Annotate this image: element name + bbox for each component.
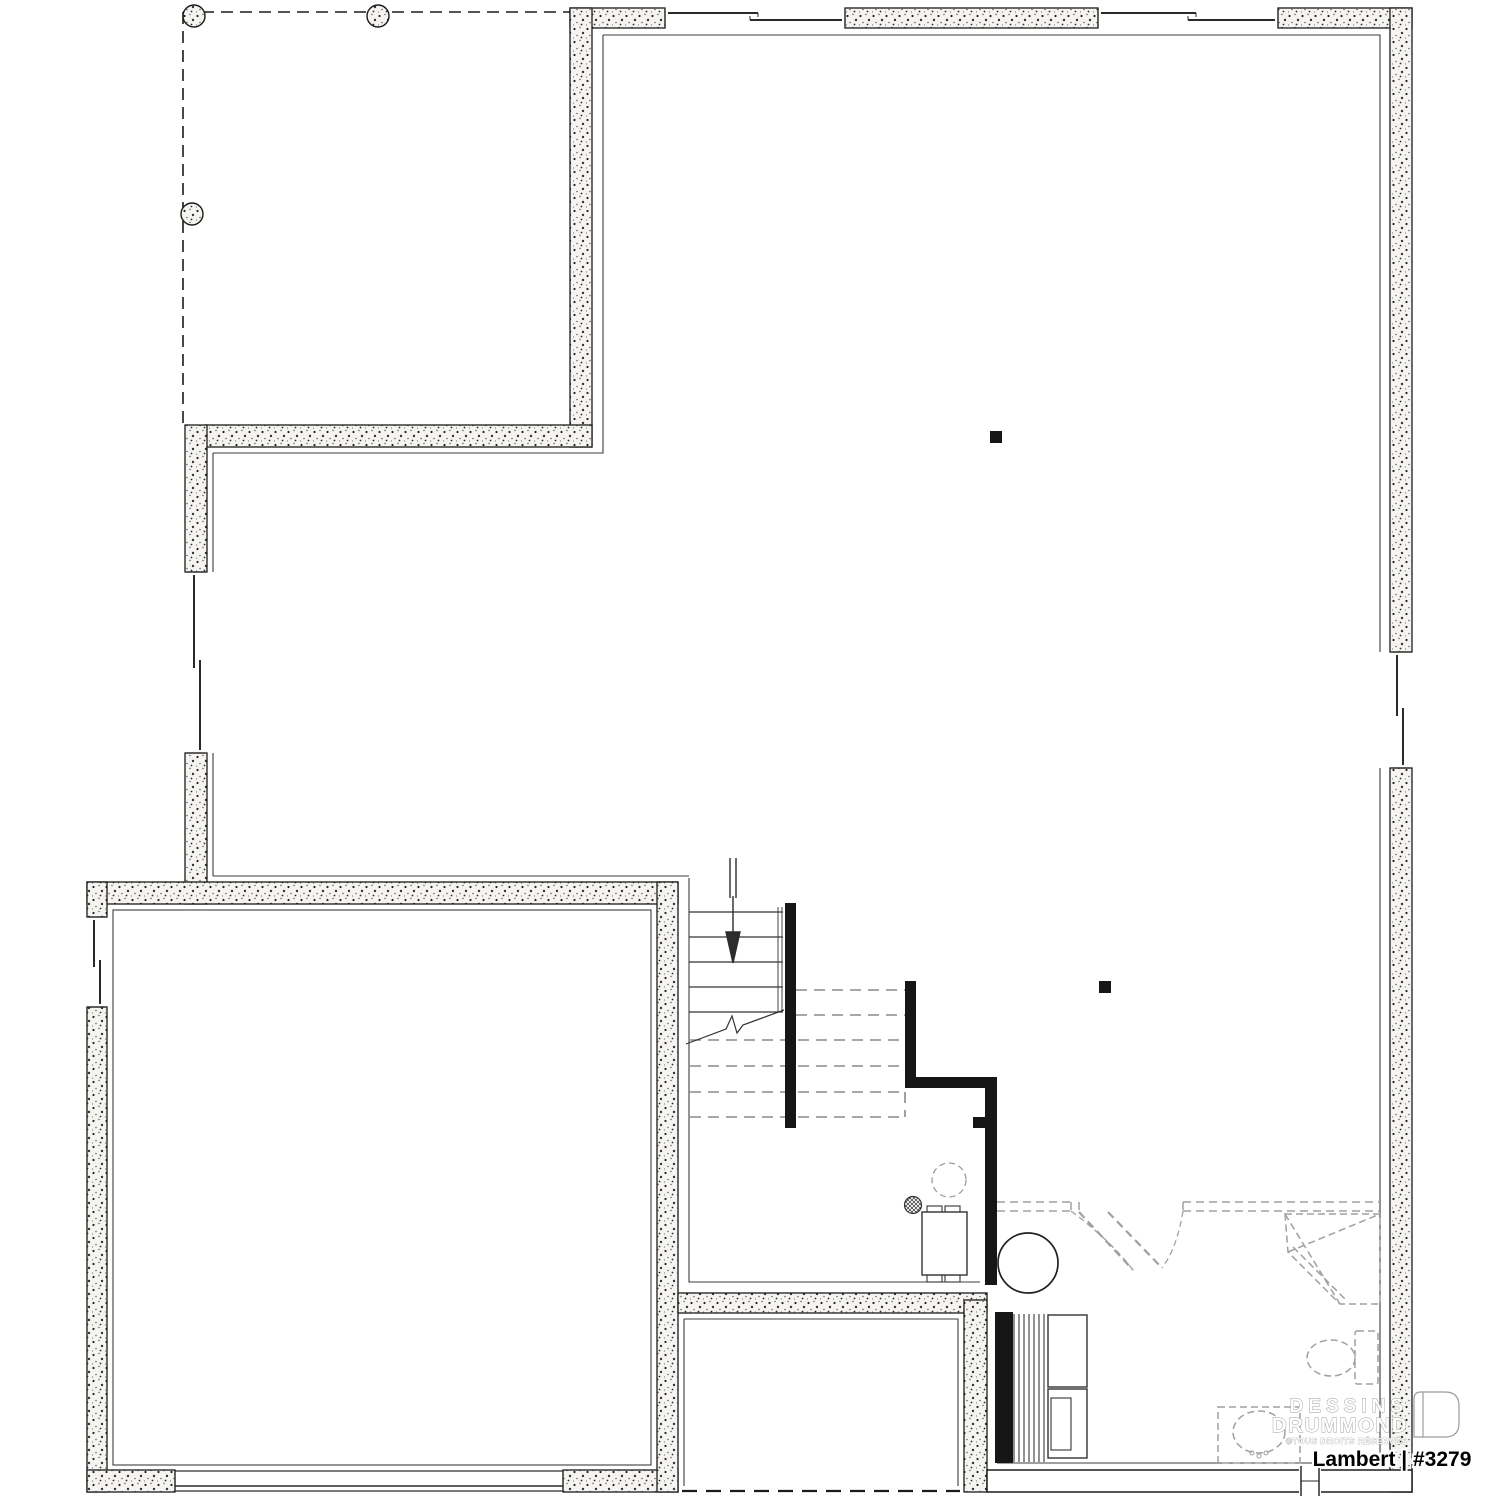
watermark-line3: ©TOUS DROITS RÉSERVÉS	[1286, 1436, 1407, 1446]
corner-shower	[1285, 1214, 1380, 1304]
floor-drain	[905, 1197, 922, 1214]
steel-post	[1099, 981, 1111, 993]
foundation-wall-coldroom-right	[964, 1300, 987, 1492]
watermark: DESSINS DRUMMOND ©TOUS DROITS RÉSERVÉS L…	[1272, 1392, 1472, 1471]
door-jamb-post	[973, 1117, 986, 1128]
double-door-swing	[1071, 1211, 1183, 1270]
water-heater-tank	[998, 1233, 1058, 1293]
stair-east-wall	[905, 981, 916, 1083]
bathroom-dashed-walls	[997, 1202, 1380, 1211]
face-line-coldroom-inset	[684, 1319, 958, 1486]
future-equipment-dashed-circle	[932, 1163, 966, 1197]
foundation-wall-garage-right	[657, 882, 678, 1492]
stair-handrail	[778, 907, 782, 1012]
floorplan-canvas: DESSINS DRUMMOND ©TOUS DROITS RÉSERVÉS L…	[0, 0, 1500, 1500]
toilet	[1307, 1331, 1378, 1384]
floorplan-drawing: DESSINS DRUMMOND ©TOUS DROITS RÉSERVÉS L…	[0, 0, 1500, 1500]
mechanical-north-wall	[905, 1077, 997, 1088]
foundation-wall-garage-top	[87, 882, 678, 904]
foundation-wall-left-upper	[185, 425, 207, 572]
stair-down-arrow-icon	[726, 858, 740, 963]
window-left-wall	[187, 572, 205, 753]
mechanical-east-wall	[985, 1088, 997, 1285]
appliance-door-detail	[1051, 1398, 1071, 1450]
window-garage-left	[89, 917, 105, 1007]
mechanical-equipment	[905, 1163, 1059, 1293]
stair-west-wall	[785, 903, 796, 1128]
plan-number-label: Lambert | #3279	[1313, 1448, 1472, 1471]
wall-openings	[89, 8, 1410, 1492]
deck-footing-pier	[181, 203, 203, 225]
watermark-line2: DRUMMOND	[1272, 1414, 1408, 1437]
foundation-wall-coldroom-top	[678, 1293, 987, 1313]
steel-post	[990, 431, 1002, 443]
furnace-unit	[922, 1206, 967, 1282]
closet-west-wall	[995, 1312, 1013, 1463]
foundation-wall-upper-left-vertical	[570, 8, 592, 447]
foundation-wall-garage-left-upper	[87, 882, 107, 917]
window-right-wall	[1392, 652, 1410, 768]
foundation-wall-top-mid-seg	[845, 8, 1098, 28]
stair-treads-solid	[689, 912, 783, 1012]
interior-face-lines	[113, 35, 1380, 1486]
deck-footing-piers	[181, 5, 389, 225]
face-line-garage-inset	[113, 910, 651, 1465]
appliance-unit	[1048, 1315, 1087, 1387]
deck-footprint-outline	[183, 12, 570, 425]
laundry-closet-zone	[1014, 1314, 1087, 1462]
face-line-upper-left	[213, 35, 603, 453]
deck-footing-pier	[367, 5, 389, 27]
foundation-walls	[87, 8, 1412, 1492]
garage-door-opening	[175, 1470, 563, 1492]
foundation-wall-garage-left-lower	[87, 1007, 107, 1492]
foundation-wall-left-lower	[185, 753, 207, 904]
stair-treads-dashed	[690, 990, 905, 1117]
face-line-left	[213, 453, 689, 876]
deck-footing-pier	[183, 5, 205, 27]
foundation-wall-right-upper	[1390, 8, 1412, 652]
closet-shelf-lines	[1014, 1314, 1044, 1462]
patio-door-top-left	[665, 8, 845, 28]
patio-door-top-right	[1098, 8, 1278, 28]
foundation-wall-garage-bottom-left	[87, 1470, 175, 1492]
foundation-wall-step-horizontal	[205, 425, 592, 447]
drummond-door-logo-icon	[1414, 1392, 1459, 1437]
stair-break-line	[686, 1010, 784, 1044]
foundation-wall-right-lower	[1390, 768, 1412, 1492]
